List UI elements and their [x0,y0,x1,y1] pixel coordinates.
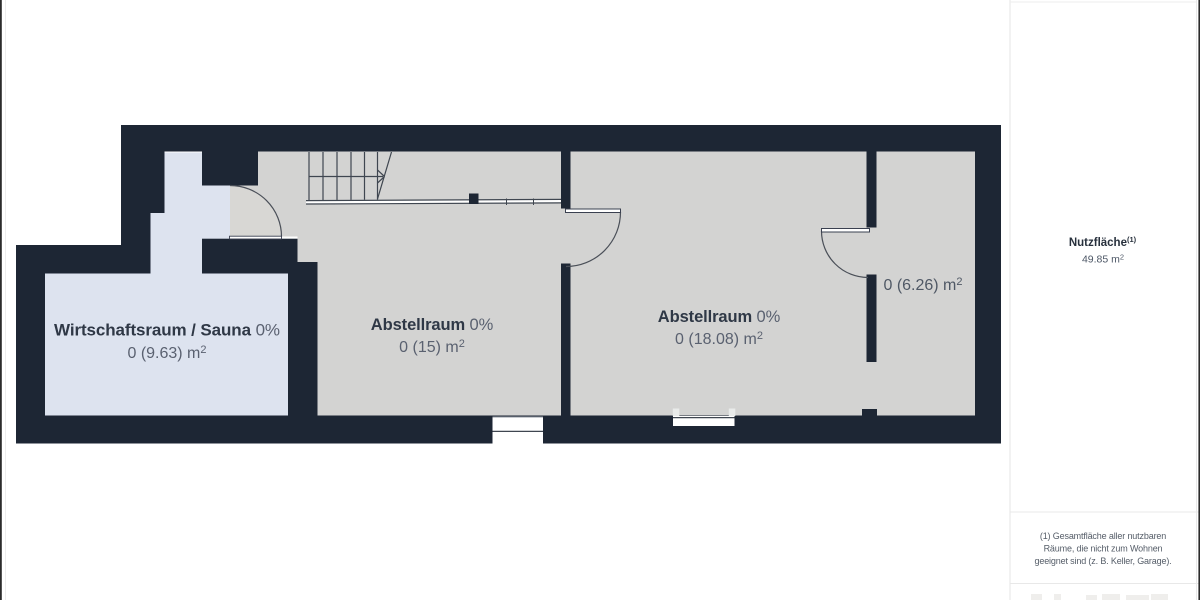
svg-text:geeignet sind (z. B. Keller, G: geeignet sind (z. B. Keller, Garage). [1034,556,1171,566]
svg-text:Abstellraum 0%: Abstellraum 0% [658,308,781,326]
svg-text:Räume, die nicht zum Wohnen: Räume, die nicht zum Wohnen [1044,544,1163,554]
svg-text:(1) Gesamtfläche aller nutzbar: (1) Gesamtfläche aller nutzbaren [1040,531,1166,541]
svg-text:0 (18.08) m2: 0 (18.08) m2 [675,330,763,348]
svg-text:0 (9.63) m2: 0 (9.63) m2 [127,344,206,362]
svg-text:0 (15) m2: 0 (15) m2 [399,338,465,356]
svg-text:0 (6.26) m2: 0 (6.26) m2 [883,276,962,294]
svg-text:Abstellraum 0%: Abstellraum 0% [371,316,494,334]
svg-text:Wirtschaftsraum / Sauna 0%: Wirtschaftsraum / Sauna 0% [54,321,280,340]
svg-text:49.85 m2: 49.85 m2 [1082,253,1124,266]
svg-text:Nutzfläche(1): Nutzfläche(1) [1069,235,1137,249]
